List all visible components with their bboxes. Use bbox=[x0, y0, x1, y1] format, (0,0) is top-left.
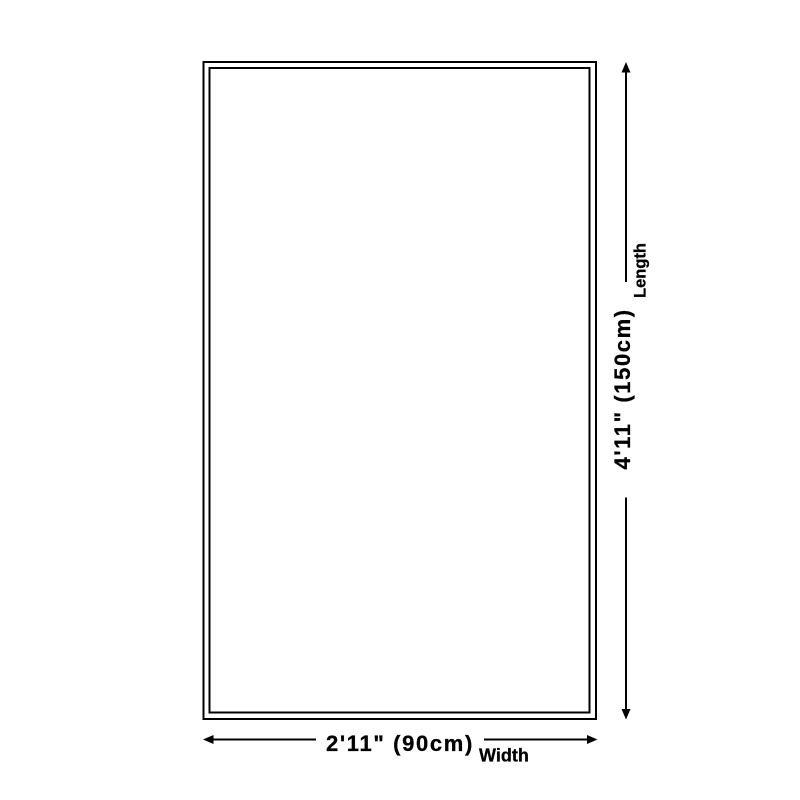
svg-text:2'11" (90cm): 2'11" (90cm) bbox=[326, 731, 474, 756]
svg-text:Width: Width bbox=[479, 746, 529, 766]
svg-text:4'11" (150cm): 4'11" (150cm) bbox=[610, 308, 635, 469]
svg-text:Length: Length bbox=[632, 243, 650, 298]
